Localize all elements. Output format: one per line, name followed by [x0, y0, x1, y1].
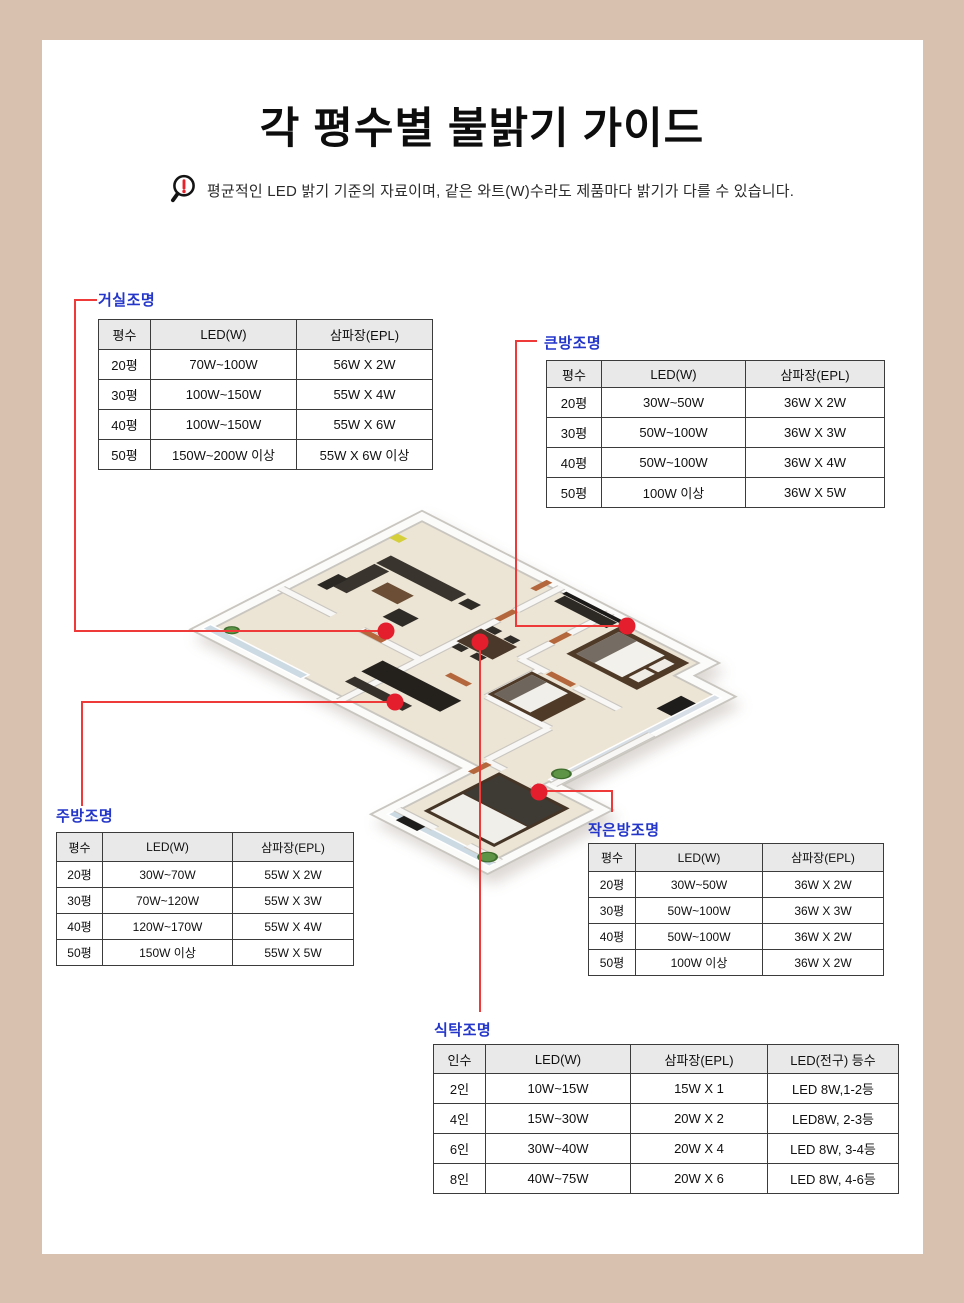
cell: 20평 — [57, 862, 103, 888]
cell: 30W~40W — [486, 1134, 631, 1164]
page-title: 각 평수별 불밝기 가이드 — [0, 94, 964, 156]
cell: 36W X 3W — [746, 418, 885, 448]
living-lighting-table: 평수LED(W)삼파장(EPL) 20평70W~100W56W X 2W 30평… — [98, 319, 433, 470]
cell: 50평 — [57, 940, 103, 966]
cell: 50평 — [547, 478, 602, 508]
col-header: LED(W) — [151, 320, 297, 350]
cell: 20W X 6 — [631, 1164, 768, 1194]
table-row: 40평50W~100W36W X 2W — [589, 924, 884, 950]
cell: 20평 — [547, 388, 602, 418]
disclaimer-row: 평균적인 LED 밝기 기준의 자료이며, 같은 와트(W)수라도 제품마다 밝… — [0, 174, 964, 206]
isometric-group — [150, 516, 770, 869]
cell: 50평 — [99, 440, 151, 470]
cell: 36W X 5W — [746, 478, 885, 508]
living-lighting-label: 거실조명 — [98, 289, 155, 310]
cell: 36W X 2W — [746, 388, 885, 418]
cell: 6인 — [434, 1134, 486, 1164]
cell: 36W X 2W — [763, 872, 884, 898]
cell: 50W~100W — [636, 924, 763, 950]
poster-page: 각 평수별 불밝기 가이드 평균적인 LED 밝기 기준의 자료이며, 같은 와… — [0, 0, 964, 1303]
col-header: 인수 — [434, 1045, 486, 1074]
cell: 55W X 3W — [233, 888, 354, 914]
cell: 150W 이상 — [103, 940, 233, 966]
cell: 55W X 2W — [233, 862, 354, 888]
cell: 40평 — [99, 410, 151, 440]
col-header: LED(W) — [103, 833, 233, 862]
cell: 100W~150W — [151, 380, 297, 410]
kitchen-lighting-table: 평수LED(W)삼파장(EPL) 20평30W~70W55W X 2W 30평7… — [56, 832, 354, 966]
cell: LED 8W, 4-6등 — [768, 1164, 899, 1194]
table-row: 50평150W 이상55W X 5W — [57, 940, 354, 966]
cell: 36W X 4W — [746, 448, 885, 478]
cell: 30평 — [99, 380, 151, 410]
col-header: 삼파장(EPL) — [297, 320, 433, 350]
cell: 70W~100W — [151, 350, 297, 380]
table-row: 30평70W~120W55W X 3W — [57, 888, 354, 914]
table-row: 8인40W~75W20W X 6LED 8W, 4-6등 — [434, 1164, 899, 1194]
cell: 100W~150W — [151, 410, 297, 440]
cell: 20평 — [589, 872, 636, 898]
cell: 20평 — [99, 350, 151, 380]
table-row: 2인10W~15W15W X 1LED 8W,1-2등 — [434, 1074, 899, 1104]
cell: 36W X 2W — [763, 924, 884, 950]
col-header: 삼파장(EPL) — [763, 844, 884, 872]
cell: 50W~100W — [602, 418, 746, 448]
small-room-lighting-label: 작은방조명 — [588, 819, 660, 840]
cell: 70W~120W — [103, 888, 233, 914]
col-header: 삼파장(EPL) — [746, 361, 885, 388]
cell: 30W~50W — [602, 388, 746, 418]
master-lighting-label: 큰방조명 — [544, 332, 601, 353]
col-header: LED(W) — [602, 361, 746, 388]
col-header: LED(W) — [636, 844, 763, 872]
cell: 55W X 4W — [297, 380, 433, 410]
cell: LED 8W,1-2등 — [768, 1074, 899, 1104]
cell: 50평 — [589, 950, 636, 976]
table-row: 40평50W~100W36W X 4W — [547, 448, 885, 478]
small-room-lighting-table: 평수LED(W)삼파장(EPL) 20평30W~50W36W X 2W 30평5… — [588, 843, 884, 976]
col-header: 평수 — [547, 361, 602, 388]
cell: 55W X 5W — [233, 940, 354, 966]
cell: 15W~30W — [486, 1104, 631, 1134]
cell: 30W~50W — [636, 872, 763, 898]
cell: 40W~75W — [486, 1164, 631, 1194]
table-row: 30평100W~150W55W X 4W — [99, 380, 433, 410]
kitchen-lighting-label: 주방조명 — [56, 805, 113, 826]
col-header: 평수 — [57, 833, 103, 862]
cell: 30평 — [547, 418, 602, 448]
cell: 8인 — [434, 1164, 486, 1194]
cell: 56W X 2W — [297, 350, 433, 380]
cell: 2인 — [434, 1074, 486, 1104]
cell: 150W~200W 이상 — [151, 440, 297, 470]
cell: 10W~15W — [486, 1074, 631, 1104]
dining-lighting-table: 인수LED(W)삼파장(EPL)LED(전구) 등수 2인10W~15W15W … — [433, 1044, 899, 1194]
cell: 100W 이상 — [602, 478, 746, 508]
magnifier-alert-icon — [170, 174, 198, 206]
table-row: 20평30W~50W36W X 2W — [589, 872, 884, 898]
cell: 50W~100W — [636, 898, 763, 924]
col-header: LED(전구) 등수 — [768, 1045, 899, 1074]
table-row: 50평150W~200W 이상55W X 6W 이상 — [99, 440, 433, 470]
cell: 40평 — [589, 924, 636, 950]
cell: 20W X 2 — [631, 1104, 768, 1134]
cell: 120W~170W — [103, 914, 233, 940]
col-header: 평수 — [589, 844, 636, 872]
cell: 55W X 6W — [297, 410, 433, 440]
cell: 100W 이상 — [636, 950, 763, 976]
table-row: 40평120W~170W55W X 4W — [57, 914, 354, 940]
table-row: 20평30W~70W55W X 2W — [57, 862, 354, 888]
master-lighting-table: 평수LED(W)삼파장(EPL) 20평30W~50W36W X 2W 30평5… — [546, 360, 885, 508]
table-row: 30평50W~100W36W X 3W — [547, 418, 885, 448]
table-row: 4인15W~30W20W X 2LED8W, 2-3등 — [434, 1104, 899, 1134]
table-row: 6인30W~40W20W X 4LED 8W, 3-4등 — [434, 1134, 899, 1164]
cell: 36W X 2W — [763, 950, 884, 976]
table-row: 40평100W~150W55W X 6W — [99, 410, 433, 440]
cell: 40평 — [547, 448, 602, 478]
cell: 50W~100W — [602, 448, 746, 478]
col-header: 평수 — [99, 320, 151, 350]
cell: LED8W, 2-3등 — [768, 1104, 899, 1134]
cell: 20W X 4 — [631, 1134, 768, 1164]
dining-lighting-label: 식탁조명 — [434, 1019, 491, 1040]
cell: LED 8W, 3-4등 — [768, 1134, 899, 1164]
col-header: 삼파장(EPL) — [233, 833, 354, 862]
table-row: 50평100W 이상36W X 2W — [589, 950, 884, 976]
table-row: 20평30W~50W36W X 2W — [547, 388, 885, 418]
cell: 30W~70W — [103, 862, 233, 888]
table-row: 50평100W 이상36W X 5W — [547, 478, 885, 508]
cell: 55W X 6W 이상 — [297, 440, 433, 470]
col-header: LED(W) — [486, 1045, 631, 1074]
col-header: 삼파장(EPL) — [631, 1045, 768, 1074]
cell: 30평 — [57, 888, 103, 914]
cell: 40평 — [57, 914, 103, 940]
cell: 4인 — [434, 1104, 486, 1134]
cell: 36W X 3W — [763, 898, 884, 924]
table-row: 30평50W~100W36W X 3W — [589, 898, 884, 924]
cell: 55W X 4W — [233, 914, 354, 940]
table-row: 20평70W~100W56W X 2W — [99, 350, 433, 380]
cell: 15W X 1 — [631, 1074, 768, 1104]
cell: 30평 — [589, 898, 636, 924]
disclaimer-text: 평균적인 LED 밝기 기준의 자료이며, 같은 와트(W)수라도 제품마다 밝… — [207, 180, 794, 201]
